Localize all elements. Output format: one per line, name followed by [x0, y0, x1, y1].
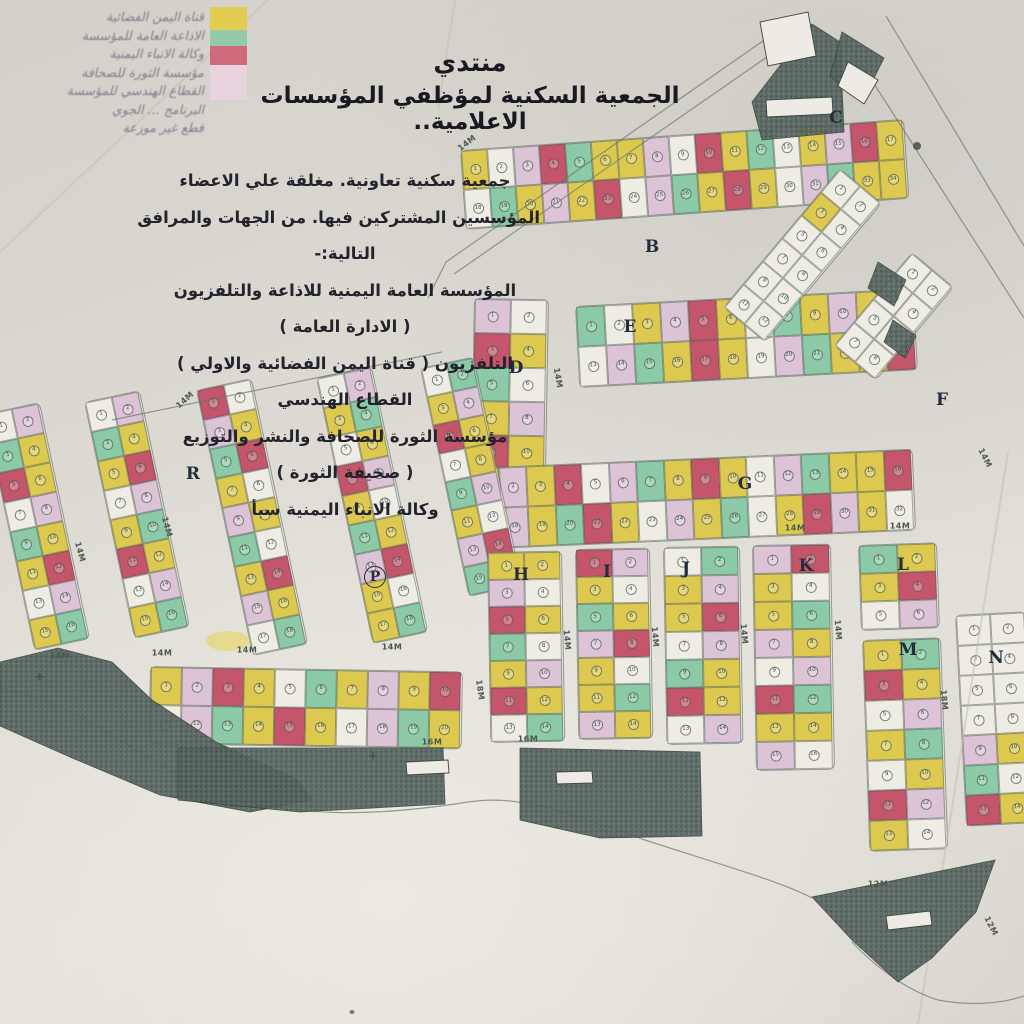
plot-cell: 13 [212, 706, 244, 745]
plot-cell: 2 [791, 545, 829, 574]
plot-number: 12 [539, 695, 550, 706]
plot-number: 9 [485, 447, 496, 458]
plot-number: 7 [645, 475, 656, 486]
plot-cell: 20 [429, 710, 461, 749]
plot-number: 16 [892, 465, 903, 476]
plot-cell: 1 [85, 397, 118, 432]
plot-cell: 5 [688, 300, 718, 341]
plot-number: 29 [811, 508, 822, 519]
plot-number: 10 [703, 147, 715, 159]
block-letter-C: C [829, 108, 843, 128]
plot-number: 20 [783, 350, 795, 362]
plot-cell: 2 [524, 552, 560, 580]
plot-cell: 9 [342, 491, 375, 526]
plot-number: 6 [366, 437, 379, 450]
plot-number: 17 [885, 135, 897, 147]
street-width-label: 14M [382, 643, 403, 652]
road-boundary-line [428, 36, 770, 298]
intro-line: القطاع الهندسي [150, 382, 540, 419]
plot-cell: 2 [990, 612, 1024, 644]
plot-number: 13 [484, 515, 495, 526]
plot-number: 8 [795, 267, 810, 282]
plot-block-N: 1234567891011121314 [955, 611, 1024, 826]
plot-number: 5 [590, 612, 601, 623]
plot-cell: 13 [491, 714, 527, 742]
plot-cell: 14 [794, 713, 832, 742]
legend-swatch-rose-plots [210, 46, 247, 65]
plot-cell: 12 [703, 687, 740, 716]
plot-block-left-1: 12345678910111213141516 [0, 402, 90, 651]
plot-cell: 12 [181, 706, 213, 745]
plot-number: 12 [782, 469, 793, 480]
plot-number: 5 [879, 710, 890, 721]
plot-number: 12 [265, 537, 278, 550]
plot-cell: 3 [632, 303, 662, 344]
plot-number: 26 [680, 188, 692, 200]
road-boundary-line [0, 688, 468, 813]
plot-cell: 17 [336, 708, 368, 747]
plot-number: 1 [470, 164, 482, 176]
plot-cell: 32 [827, 163, 856, 204]
plot-cell: 14 [999, 792, 1024, 824]
plot-number: 12 [756, 313, 771, 328]
plot-number: 10 [440, 686, 451, 697]
plot-cell: 10 [471, 471, 502, 505]
plot-number: 1 [877, 650, 888, 661]
plot-cell: 18 [500, 507, 529, 548]
plot-number: 14 [159, 579, 172, 592]
plot-number: 13 [222, 720, 233, 731]
plot-cell: 2 [487, 147, 516, 188]
plot-number: 3 [767, 582, 778, 593]
plot-cell: 15 [274, 707, 306, 746]
plot-cell: 4 [18, 433, 51, 468]
plot-number: 3 [1, 449, 14, 462]
plot-cell: 8 [792, 629, 830, 658]
plot-cell: 14 [798, 126, 827, 167]
plot-cell: 2 [897, 543, 936, 572]
plot-number: 15 [371, 590, 384, 603]
mosque-cross-symbol: ✚ [36, 673, 45, 684]
intro-line: التلفزيون ( قناة اليمن الفضائية والاولي … [150, 346, 540, 383]
plot-number: 12 [191, 719, 202, 730]
plot-cell: 2 [841, 186, 880, 226]
plot-number: 9 [120, 525, 133, 538]
plot-number: 2 [915, 648, 926, 659]
plot-number: 7 [347, 684, 358, 695]
plot-cell: 9 [445, 477, 476, 511]
plot-number: 2 [495, 162, 507, 174]
plot-cell: 7 [866, 730, 905, 761]
plot-number: 4 [1004, 652, 1016, 664]
plot-cell: 3 [576, 576, 612, 604]
street-width-label: 16M [422, 738, 443, 747]
plot-number: 14 [492, 539, 505, 552]
plot-block-I: 1234567891011121314 [575, 548, 653, 740]
plot-cell: 8 [904, 728, 943, 759]
plot-cell: 16 [794, 741, 832, 770]
legend-line: القطاع الهندسي للمؤسسة [8, 82, 204, 101]
plot-number: 28 [732, 184, 744, 196]
plot-cell: 8 [702, 631, 739, 660]
plot-cell: 16 [267, 585, 300, 620]
plot-cell: 14 [243, 707, 275, 746]
street-width-label: 14M [833, 619, 844, 640]
plot-cell: 6 [702, 603, 739, 632]
plot-number: 24 [895, 344, 907, 356]
plot-number: 9 [503, 669, 514, 680]
road-boundary-line [846, 40, 1024, 318]
plot-number: 3 [970, 654, 982, 666]
plot-cell: 8 [995, 702, 1024, 734]
plot-number: 14 [921, 828, 932, 839]
plot-cell: 14 [606, 344, 636, 385]
plot-number: 12 [1010, 772, 1022, 784]
plot-number: 9 [679, 668, 690, 679]
plot-cell: 12 [884, 289, 914, 330]
plot-cell: 9 [800, 294, 830, 335]
plot-number: 4 [254, 682, 265, 693]
plot-number: 12 [520, 481, 531, 492]
plot-cell: 2 [112, 392, 145, 427]
plot-cell: 1 [753, 545, 791, 574]
plot-block-E: 123456789101112131415161718192021222324 [575, 288, 918, 388]
intro-line: ( صحيفة الثورة ) [150, 455, 540, 492]
plot-cell: 1 [893, 253, 932, 293]
plot-number: 14 [59, 591, 72, 604]
plot-number: 10 [837, 307, 849, 319]
plot-cell: 3 [323, 403, 356, 438]
plot-number: 4 [128, 432, 141, 445]
plot-number: 24 [674, 514, 685, 525]
plot-cell: 4 [118, 421, 151, 456]
plot-number: 9 [881, 770, 892, 781]
plot-cell: 5 [433, 420, 464, 454]
plot-number: 13 [467, 544, 480, 557]
plot-number: 4 [547, 158, 559, 170]
plot-number: 11 [358, 531, 371, 544]
plot-cell: 7 [617, 138, 646, 179]
plot-number: 4 [912, 580, 923, 591]
plot-number: 7 [502, 642, 513, 653]
plot-cell: 15 [129, 603, 162, 638]
plot-number: 11 [503, 696, 514, 707]
plot-cell: 15 [361, 579, 394, 614]
plot-cell: 13 [235, 561, 268, 596]
plot-number: 2 [625, 557, 636, 568]
plot-cell: 12 [477, 500, 508, 534]
plot-number: 14 [391, 555, 404, 568]
plot-cell: 8 [783, 255, 822, 295]
map-labels-layer: 14M14M14M14M14M14M14M14M14M14M14M16M16M1… [0, 0, 1024, 1024]
legend-color-swatches [210, 7, 247, 100]
plot-number: 6 [34, 473, 47, 486]
plot-number: 6 [468, 425, 481, 438]
plot-block-G: 1234567891011121314151617181920212223242… [470, 449, 916, 550]
street-width-label: 16M [518, 735, 539, 744]
plot-number: 31 [866, 506, 877, 517]
plot-number: 2 [192, 681, 203, 692]
plot-cell: 3 [91, 427, 124, 462]
plot-number: 30 [783, 181, 795, 193]
plot-cell: 3 [474, 333, 511, 368]
plot-cell: 6 [305, 670, 337, 709]
plot-number: 10 [775, 290, 790, 305]
plot-number: 6 [316, 683, 327, 694]
plot-number: 1 [589, 558, 600, 569]
diamond-plot-top-right [760, 12, 816, 66]
plot-cell: 11 [348, 520, 381, 555]
plot-cell: 10 [37, 521, 70, 556]
plot-cell: 3 [864, 670, 903, 701]
plot-number: 12 [385, 525, 398, 538]
plot-number: 4 [562, 479, 573, 490]
plot-number: 4 [715, 583, 726, 594]
plot-cell: 11 [451, 505, 482, 539]
plot-number: 8 [378, 684, 389, 695]
plot-cell: 27 [748, 496, 777, 537]
plot-cell: 14 [615, 711, 651, 739]
plot-cell: 10 [996, 732, 1024, 764]
plot-cell: 8 [509, 402, 546, 437]
plot-cell: 2 [447, 358, 478, 392]
plot-number: 11 [882, 800, 893, 811]
plot-cell: 10 [429, 672, 461, 711]
plot-cell: 5 [565, 142, 594, 183]
plot-cell: 7 [336, 461, 369, 496]
plot-number: 10 [1008, 742, 1020, 754]
plot-cell: 1 [461, 149, 490, 190]
label-box-top-right-2 [838, 62, 878, 104]
plot-number: 3 [501, 588, 512, 599]
plot-number: 10 [480, 482, 493, 495]
plot-number: 10 [716, 667, 727, 678]
plot-number: 18 [509, 521, 520, 532]
plot-cell: 11 [228, 532, 261, 567]
plot-number: 1 [327, 384, 340, 397]
plot-cell: 24 [665, 499, 694, 540]
plot-cell: 5 [959, 674, 995, 706]
plot-number: 17 [377, 619, 390, 632]
plot-cell: 3 [513, 145, 542, 186]
plot-number: 2 [1002, 622, 1014, 634]
plot-number: 8 [252, 479, 265, 492]
plot-number: 3 [333, 413, 346, 426]
plot-number: 2 [523, 311, 534, 322]
plot-number: 3 [874, 582, 885, 593]
plot-number: 6 [246, 449, 259, 462]
dark-strip-center-a [178, 748, 445, 812]
plot-number: 2 [911, 552, 922, 563]
plot-cell: 11 [16, 556, 49, 591]
block-letter-N: N [988, 648, 1004, 668]
plot-number: 20 [564, 519, 575, 530]
plot-cell: 9 [398, 671, 430, 710]
intro-line: جمعية سكنية تعاونية. مغلقة علي الاعضاء [150, 163, 540, 200]
plot-number: 5 [442, 430, 455, 443]
plot-number: 13 [244, 572, 257, 585]
plot-cell: 5 [581, 463, 610, 504]
plot-number: 10 [378, 496, 391, 509]
plot-cell: 10 [718, 457, 747, 498]
plot-blocks-layer: 1234567891011121314151617181920212223242… [0, 0, 1024, 1024]
plot-cell: 14 [381, 544, 414, 579]
plot-cell: 10 [137, 509, 170, 544]
plot-block-K: 12345678910111213141516 [752, 544, 835, 771]
plot-cell: 9 [962, 734, 998, 766]
plot-number: 11 [729, 145, 741, 157]
plot-number: 6 [617, 477, 628, 488]
plot-cell: 7 [336, 670, 368, 709]
plot-cell: 9 [755, 657, 793, 686]
plot-cell: 4 [243, 669, 275, 708]
plot-block-L: 123456 [858, 542, 940, 631]
plot-cell: 6 [792, 601, 830, 630]
plot-cell: 9 [691, 458, 720, 499]
plot-number: 12 [893, 304, 905, 316]
plot-cell: 6 [903, 698, 942, 729]
plot-number: 15 [251, 602, 264, 615]
plot-cell: 15 [634, 342, 664, 383]
dark-triangle-bottom-right [812, 860, 995, 982]
plot-number: 1 [0, 420, 8, 433]
plot-cell: 3 [874, 276, 913, 316]
block-letter-P: P [364, 566, 386, 588]
plot-cell: 6 [802, 232, 841, 272]
plot-block-left-4: 123456789101112131415161718 [316, 366, 428, 644]
block-letter-J: J [682, 559, 690, 579]
plot-cell: 1 [821, 169, 860, 209]
paper-crease-line [0, 0, 268, 252]
plot-cell: 1 [474, 299, 511, 334]
plot-number: 24 [628, 192, 640, 204]
plot-number: 7 [590, 639, 601, 650]
plot-cell: 10 [828, 292, 858, 333]
plot-cell: 8 [367, 671, 399, 710]
plot-cell: 30 [775, 166, 804, 207]
plot-number: 11 [976, 774, 988, 786]
street-width-label: 14M [174, 390, 195, 410]
block-letter-E: E [624, 317, 637, 337]
plot-number: 16 [165, 608, 178, 621]
plot-cell: 13 [801, 453, 830, 494]
plot-cell: 33 [853, 161, 882, 202]
plot-number: 6 [806, 609, 817, 620]
plot-number: 11 [126, 555, 139, 568]
plot-cell: 12 [375, 514, 408, 549]
plot-cell: 15 [29, 615, 62, 650]
plot-cell: 5 [98, 456, 131, 491]
plot-number: 1 [207, 396, 220, 409]
plot-cell: 1 [197, 385, 230, 420]
plot-cell: 22 [830, 332, 860, 373]
plot-cell: 2 [913, 270, 952, 310]
plot-cell: 16 [387, 573, 420, 608]
plot-number: 9 [769, 666, 780, 677]
plot-cell: 17 [473, 508, 502, 549]
plot-number: 5 [502, 615, 513, 626]
plot-number: 2 [507, 481, 518, 492]
plot-number: 21 [550, 197, 562, 209]
plot-number: 14 [539, 722, 550, 733]
plot-cell: 4 [821, 209, 860, 249]
plot-number: 10 [539, 668, 550, 679]
street-width-label: 14M [650, 626, 661, 647]
plot-number: 13 [591, 720, 602, 731]
plot-cell: 4 [902, 668, 941, 699]
plot-number: 2 [21, 414, 34, 427]
plot-number: 8 [521, 413, 532, 424]
plot-number: 8 [626, 638, 637, 649]
plot-cell: 13 [869, 820, 908, 851]
plot-number: 13 [132, 584, 145, 597]
plot-cell: 8 [772, 295, 802, 336]
plot-cell: 3 [860, 573, 899, 602]
plot-number: 1 [161, 681, 172, 692]
plot-number: 3 [521, 160, 533, 172]
plot-number: 9 [455, 487, 468, 500]
legend-swatch-teal-plots [210, 30, 247, 46]
plot-cell: 19 [746, 337, 776, 378]
dark-triangle-top-right [752, 24, 844, 140]
road-boundary-line [886, 16, 1024, 246]
plot-number: 6 [913, 608, 924, 619]
plot-cell: 7 [636, 461, 665, 502]
plot-number: 5 [219, 455, 232, 468]
plot-number: 18 [283, 625, 296, 638]
plot-number: 6 [626, 611, 637, 622]
dark-spot-road-2 [884, 320, 916, 358]
plot-number: 7 [448, 459, 461, 472]
plot-cell: 14 [507, 504, 544, 539]
plot-cell: 6 [459, 415, 490, 449]
plot-number: 31 [809, 179, 821, 191]
plot-cell: 14 [149, 568, 182, 603]
road-boundary-line [454, 48, 780, 274]
plot-cell: 23 [858, 331, 888, 372]
plot-cell: 1 [576, 305, 606, 346]
plot-cell: 8 [362, 456, 395, 491]
plot-number: 16 [397, 584, 410, 597]
block-letter-R: R [186, 464, 200, 484]
plot-cell: 9 [10, 527, 43, 562]
block-letter-I: I [603, 562, 611, 582]
plot-number: 32 [835, 177, 847, 189]
plot-cell: 4 [992, 642, 1024, 674]
plot-cell: 11 [964, 764, 1000, 796]
plot-number: 10 [807, 665, 818, 676]
plot-cell: 11 [868, 790, 907, 821]
plot-cell: 31 [801, 164, 830, 205]
plot-number: 8 [140, 491, 153, 504]
plot-number: 9 [677, 149, 689, 161]
plot-number: 1 [873, 554, 884, 565]
plot-cell: 8 [663, 459, 692, 500]
plot-cell: 18 [273, 614, 306, 649]
dark-spot-road-1 [868, 262, 906, 306]
plot-block-H: 1234567891011121314 [487, 551, 565, 743]
plot-block-B-top: 1234567891011121314151617181920212223242… [460, 119, 909, 230]
plot-number: 7 [485, 413, 496, 424]
plot-number: 3 [589, 585, 600, 596]
plot-number: 2 [853, 198, 868, 213]
plot-cell: 8 [525, 633, 561, 661]
plot-cell: 10 [249, 497, 282, 532]
plot-cell: 3 [488, 579, 524, 607]
street-width-label: 14M [785, 524, 806, 533]
intro-line: مؤسسة الثورة للصحافة والنشر والتوزيع [150, 419, 540, 456]
plot-number: 11 [591, 693, 602, 704]
